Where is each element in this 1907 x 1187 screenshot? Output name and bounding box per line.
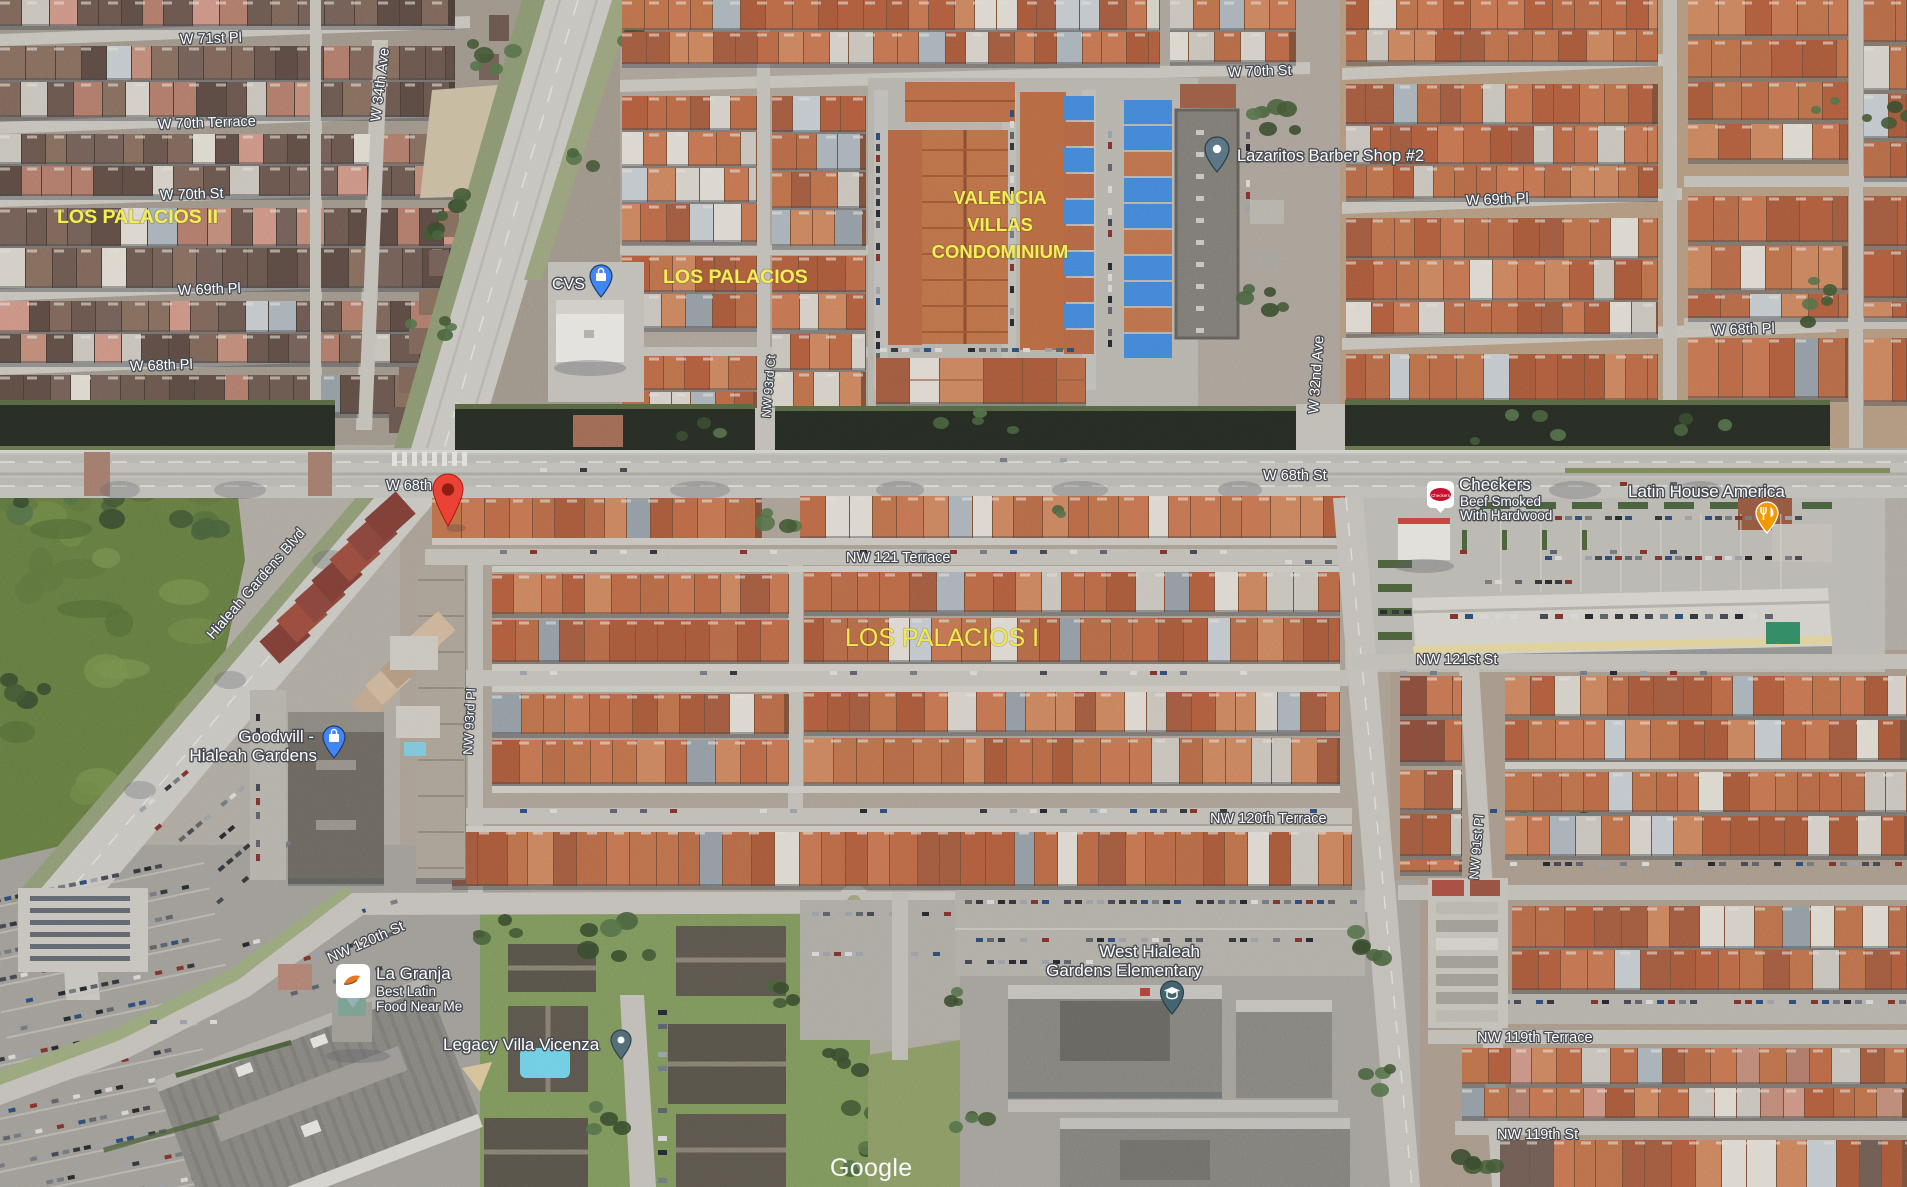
- svg-text:Legacy Villa Vicenza: Legacy Villa Vicenza: [443, 1035, 600, 1054]
- svg-text:Goodwill -: Goodwill -: [238, 727, 314, 746]
- svg-text:Checkers: Checkers: [1459, 475, 1531, 494]
- svg-text:Latin House America: Latin House America: [1628, 482, 1785, 501]
- svg-text:La Granja: La Granja: [376, 964, 451, 983]
- svg-text:Food Near Me: Food Near Me: [376, 999, 462, 1014]
- svg-text:W 68th St: W 68th St: [1263, 468, 1327, 484]
- svg-text:With Hardwood: With Hardwood: [1460, 508, 1552, 523]
- svg-text:NW 121st St: NW 121st St: [1416, 652, 1497, 668]
- svg-text:Hialeah Gardens: Hialeah Gardens: [189, 746, 317, 765]
- svg-text:CONDOMINIUM: CONDOMINIUM: [932, 241, 1069, 262]
- svg-text:W 68th Pl: W 68th Pl: [1712, 321, 1775, 339]
- svg-text:W 70th Terrace: W 70th Terrace: [158, 114, 257, 133]
- svg-text:LOS PALACIOS II: LOS PALACIOS II: [57, 206, 218, 228]
- svg-text:NW 119th Terrace: NW 119th Terrace: [1477, 1030, 1593, 1046]
- svg-text:W 71st Pl: W 71st Pl: [180, 30, 243, 48]
- svg-text:Checkers: Checkers: [1431, 493, 1451, 498]
- svg-text:Google: Google: [830, 1154, 912, 1182]
- svg-text:NW 121 Terrace: NW 121 Terrace: [846, 550, 951, 566]
- svg-text:LOS PALACIOS: LOS PALACIOS: [663, 266, 808, 288]
- svg-text:West Hialeah: West Hialeah: [1099, 942, 1200, 961]
- svg-text:NW 120th Terrace: NW 120th Terrace: [1210, 811, 1327, 827]
- svg-text:W 68th Pl: W 68th Pl: [130, 357, 193, 375]
- svg-text:W 70th St: W 70th St: [160, 186, 224, 204]
- svg-text:Beef Smoked: Beef Smoked: [1460, 494, 1541, 509]
- svg-text:CVS: CVS: [552, 276, 585, 293]
- svg-text:Lazaritos Barber Shop #2: Lazaritos Barber Shop #2: [1237, 147, 1424, 165]
- svg-text:W 69th Pl: W 69th Pl: [1466, 191, 1529, 209]
- svg-text:W 68th: W 68th: [386, 478, 432, 494]
- svg-text:W 70th St: W 70th St: [1228, 63, 1292, 81]
- svg-text:LOS PALACIOS I: LOS PALACIOS I: [845, 624, 1039, 652]
- svg-text:VALENCIA: VALENCIA: [953, 187, 1046, 208]
- svg-text:Gardens Elementary: Gardens Elementary: [1046, 961, 1202, 980]
- svg-text:VILLAS: VILLAS: [967, 214, 1033, 235]
- svg-text:Best Latin: Best Latin: [376, 984, 436, 999]
- svg-text:NW 119th St: NW 119th St: [1497, 1127, 1578, 1143]
- svg-text:W 69th Pl: W 69th Pl: [178, 281, 241, 299]
